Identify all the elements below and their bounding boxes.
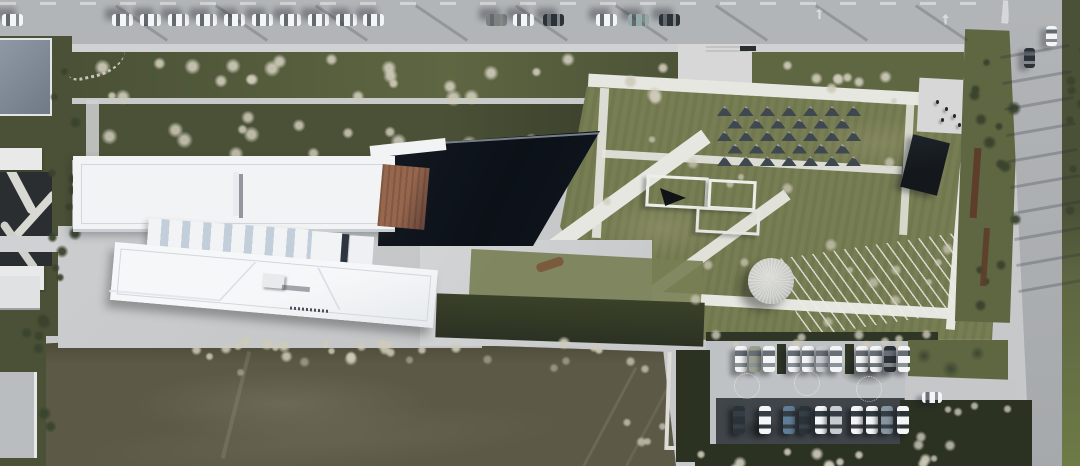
ground-art-circle <box>734 373 760 399</box>
parking-south-row-car <box>759 406 771 434</box>
parking-north-row-car <box>830 346 842 372</box>
top-road-parked-car <box>224 14 245 26</box>
pedestrian <box>953 114 956 118</box>
east-road-moving-car <box>1024 48 1035 68</box>
triangle-canopy <box>846 156 861 166</box>
parking-north-row-car <box>884 346 896 372</box>
triangle-canopy <box>835 119 850 129</box>
triangle-canopy <box>835 144 850 154</box>
top-road-parked-car <box>2 14 23 26</box>
east-road-moving-car <box>1046 26 1057 46</box>
triangle-canopy <box>803 131 818 141</box>
top-road-parked-car <box>543 14 564 26</box>
triangle-canopy <box>814 119 829 129</box>
parking-north-row-car <box>802 346 814 372</box>
parking-north-row-car <box>788 346 800 372</box>
parking-north-row-car <box>735 346 747 372</box>
parking-aisle-car <box>922 392 942 403</box>
triangle-canopy <box>717 156 732 166</box>
triangle-canopy <box>739 106 754 116</box>
parking-north-row-car <box>749 346 761 372</box>
triangle-canopy <box>760 156 775 166</box>
triangle-canopy <box>825 106 840 116</box>
pedestrian <box>941 118 944 122</box>
top-road-parked-car <box>659 14 680 26</box>
triangle-canopy <box>803 106 818 116</box>
parking-south-row-car <box>881 406 893 434</box>
triangle-canopy <box>749 144 764 154</box>
parking-south-row-car <box>897 406 909 434</box>
top-road-parked-car <box>112 14 133 26</box>
top-road-parked-car <box>336 14 357 26</box>
triangle-canopy <box>846 106 861 116</box>
pedestrian <box>945 107 948 111</box>
top-road-parked-car <box>280 14 301 26</box>
top-road-parked-car <box>596 14 617 26</box>
triangle-canopy <box>760 106 775 116</box>
triangle-canopy <box>739 156 754 166</box>
triangle-canopy <box>728 119 743 129</box>
top-road-parked-car <box>513 14 534 26</box>
triangle-canopy <box>771 144 786 154</box>
parking-north-row-car <box>870 346 882 372</box>
triangle-canopy <box>803 156 818 166</box>
triangle-canopy <box>782 106 797 116</box>
parking-north-row-car <box>816 346 828 372</box>
parking-south-row-car <box>866 406 878 434</box>
top-road-parked-car <box>486 14 507 26</box>
top-road-parked-car <box>308 14 329 26</box>
triangle-canopy <box>825 156 840 166</box>
parking-south-row-car <box>783 406 795 434</box>
triangle-canopy <box>792 119 807 129</box>
parking-north-row-car <box>856 346 868 372</box>
triangle-canopy <box>792 144 807 154</box>
objects-layer <box>0 0 1080 466</box>
top-road-parked-car <box>628 14 649 26</box>
triangle-canopy <box>760 131 775 141</box>
triangle-canopy <box>846 131 861 141</box>
aerial-photo-scene <box>0 0 1080 466</box>
triangle-canopy <box>782 131 797 141</box>
parking-south-row-car <box>851 406 863 434</box>
ground-art-circle <box>794 370 820 396</box>
triangle-canopy <box>782 156 797 166</box>
top-road-parked-car <box>252 14 273 26</box>
pedestrian <box>958 123 961 127</box>
parking-north-row-car <box>898 346 910 372</box>
triangle-canopy <box>814 144 829 154</box>
top-road-parked-car <box>168 14 189 26</box>
pedestrian <box>936 100 939 104</box>
top-road-parked-car <box>363 14 384 26</box>
triangle-canopy <box>717 131 732 141</box>
triangle-canopy <box>739 131 754 141</box>
parking-south-row-car <box>830 406 842 434</box>
parking-south-row-car <box>733 406 745 434</box>
triangle-canopy <box>825 131 840 141</box>
triangle-canopy <box>728 144 743 154</box>
ground-art-circle <box>856 376 882 402</box>
parking-south-row-car <box>799 406 811 434</box>
triangle-canopy <box>749 119 764 129</box>
top-road-parked-car <box>196 14 217 26</box>
triangle-canopy <box>771 119 786 129</box>
parking-south-row-car <box>815 406 827 434</box>
top-road-parked-car <box>140 14 161 26</box>
parking-north-row-car <box>763 346 775 372</box>
triangle-canopy <box>717 106 732 116</box>
